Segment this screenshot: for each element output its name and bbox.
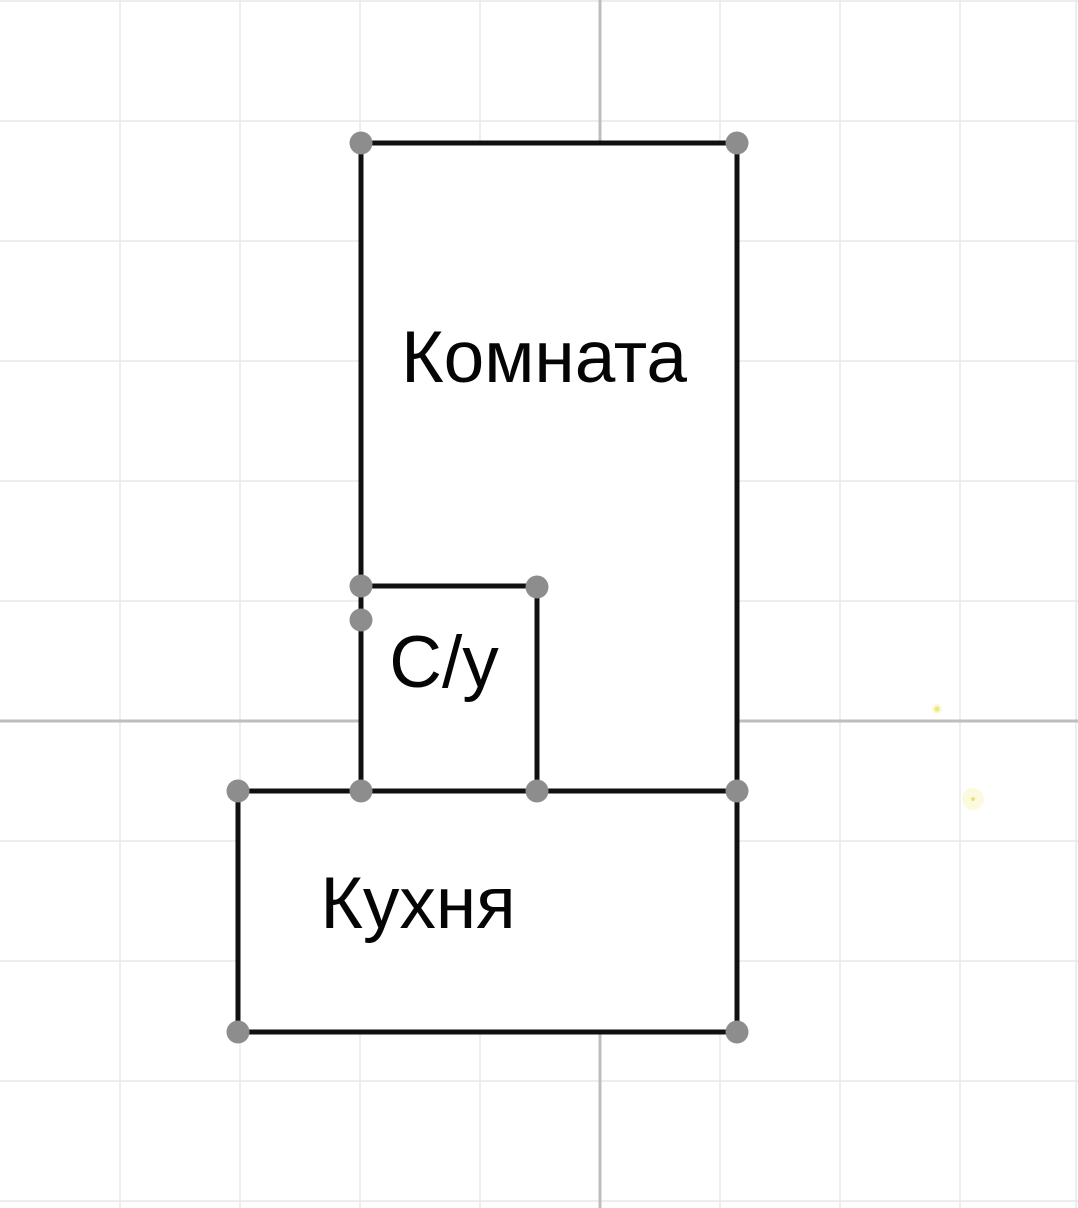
floorplan-svg: КомнатаС/уКухня [0, 0, 1078, 1208]
accent-dot [971, 797, 975, 801]
vertex-handle[interactable] [350, 609, 373, 632]
vertex-handle[interactable] [227, 780, 250, 803]
vertex-handle[interactable] [526, 780, 549, 803]
vertex-handle[interactable] [526, 576, 549, 599]
vertex-handle[interactable] [227, 1021, 250, 1044]
vertex-handle[interactable] [726, 1021, 749, 1044]
vertex-handle[interactable] [726, 132, 749, 155]
vertex-handle[interactable] [726, 780, 749, 803]
vertex-handle[interactable] [350, 132, 373, 155]
accent-dot [935, 707, 940, 712]
vertex-handle[interactable] [350, 575, 373, 598]
room-label-komnata: Комната [401, 317, 687, 398]
floorplan-canvas[interactable]: КомнатаС/уКухня [0, 0, 1078, 1208]
room-label-kuhnya: Кухня [320, 863, 515, 944]
vertex-handle[interactable] [350, 780, 373, 803]
room-label-su: С/у [389, 622, 499, 703]
